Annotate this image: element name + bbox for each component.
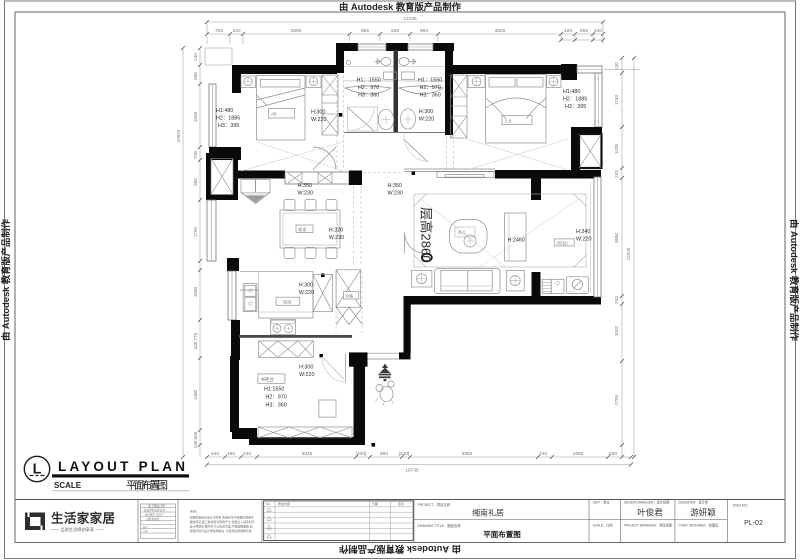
svg-text:H2：970: H2：970 xyxy=(358,85,379,91)
svg-text:CHIEF DESIGNER：绘图员: CHIEF DESIGNER：绘图员 xyxy=(679,523,719,528)
svg-text:DESIGN MANAGER：设计经理: DESIGN MANAGER：设计经理 xyxy=(624,500,670,505)
svg-text:[400]: [400] xyxy=(356,451,367,457)
svg-text:2705: 2705 xyxy=(614,394,619,405)
svg-text:H:320: H:320 xyxy=(329,228,343,234)
svg-text:W:220: W:220 xyxy=(299,290,314,296)
svg-text:由 Autodesk 教育版产品制作: 由 Autodesk 教育版产品制作 xyxy=(0,218,11,341)
svg-text:H2：970: H2：970 xyxy=(266,395,287,401)
svg-text:厨房: 厨房 xyxy=(283,299,291,306)
svg-text:H2：970: H2：970 xyxy=(420,85,441,91)
svg-text:H:300: H:300 xyxy=(299,365,313,371)
svg-text:935: 935 xyxy=(391,28,399,34)
svg-text:A8: A8 xyxy=(271,112,277,117)
svg-text:18735: 18735 xyxy=(405,468,419,474)
svg-text:设计编号 B2017: 设计编号 B2017 xyxy=(145,513,164,517)
svg-text:冰箱: 冰箱 xyxy=(345,293,353,299)
svg-text:435,775: 435,775 xyxy=(193,332,198,349)
svg-text:240: 240 xyxy=(243,451,251,457)
svg-text:施工图设计部: 施工图设计部 xyxy=(148,504,165,508)
svg-text:240: 240 xyxy=(193,53,198,61)
svg-text:1740: 1740 xyxy=(614,94,619,105)
svg-text:1.8: 1.8 xyxy=(505,119,512,124)
svg-text:H:350: H:350 xyxy=(388,183,402,189)
svg-text:555: 555 xyxy=(193,72,198,80)
svg-text:240: 240 xyxy=(614,62,619,70)
svg-text:SCALE：比例: SCALE：比例 xyxy=(593,523,613,528)
svg-text:12435: 12435 xyxy=(403,16,417,22)
svg-text:(阳台): (阳台) xyxy=(557,240,569,247)
svg-text:555: 555 xyxy=(580,28,588,34)
svg-text:DRAWING TITLE：图纸名称: DRAWING TITLE：图纸名称 xyxy=(418,523,462,528)
svg-text:1750: 1750 xyxy=(193,226,198,237)
svg-text:960: 960 xyxy=(380,451,388,457)
svg-text:1002: 1002 xyxy=(614,325,619,336)
svg-text:缃南礼居: 缃南礼居 xyxy=(472,508,504,518)
svg-text:[240]: [240] xyxy=(399,451,410,457)
svg-text:W:230: W:230 xyxy=(388,191,403,197)
svg-text:10925: 10925 xyxy=(176,129,181,142)
svg-text:243: 243 xyxy=(614,170,619,178)
svg-text:240: 240 xyxy=(594,28,602,34)
svg-text:H3：360: H3：360 xyxy=(266,403,287,409)
svg-text:H:340: H:340 xyxy=(576,229,590,235)
svg-text:W:220: W:220 xyxy=(299,372,314,378)
svg-text:1460: 1460 xyxy=(193,389,198,400)
svg-text:1660: 1660 xyxy=(193,286,198,297)
svg-text:240: 240 xyxy=(539,451,547,457)
svg-text:350: 350 xyxy=(193,178,198,186)
svg-text:PROJECT：项目名称: PROJECT：项目名称 xyxy=(418,502,451,507)
svg-text:书柜台: 书柜台 xyxy=(261,376,275,383)
svg-text:层高2860: 层高2860 xyxy=(419,207,435,263)
svg-text:W:230: W:230 xyxy=(329,235,344,241)
svg-text:日期: 日期 xyxy=(143,529,148,533)
svg-text:平面布置图: 平面布置图 xyxy=(483,529,521,539)
svg-text:3500: 3500 xyxy=(291,28,302,34)
svg-text:H:300: H:300 xyxy=(311,110,325,116)
svg-text:叶俊君: 叶俊君 xyxy=(637,508,663,518)
svg-text:游妍颖: 游妍颖 xyxy=(690,508,716,518)
svg-text:1660: 1660 xyxy=(573,451,584,457)
svg-text:H2：1885: H2：1885 xyxy=(563,97,587,103)
svg-text:1826: 1826 xyxy=(193,111,198,122)
svg-text:UNIT：单位: UNIT：单位 xyxy=(593,500,611,505)
svg-text:签字: 签字 xyxy=(398,501,404,506)
svg-text:Note:: Note: xyxy=(190,510,198,514)
svg-text:H3：360: H3：360 xyxy=(420,93,441,99)
svg-text:490: 490 xyxy=(227,451,235,457)
svg-text:955: 955 xyxy=(361,28,369,34)
svg-text:H3：395: H3：395 xyxy=(218,123,239,129)
svg-text:H1：1550: H1：1550 xyxy=(418,78,442,84)
svg-text:H:2460: H:2460 xyxy=(508,238,525,244)
svg-text:240,600: 240,600 xyxy=(193,431,198,448)
svg-text:H1:480: H1:480 xyxy=(563,89,580,95)
svg-text:3045: 3045 xyxy=(302,451,313,457)
svg-text:H:300: H:300 xyxy=(299,283,313,289)
svg-text:由 Autodesk 教育版产品制作: 由 Autodesk 教育版产品制作 xyxy=(339,1,462,12)
svg-text:240: 240 xyxy=(211,451,219,457)
svg-text:日期: 日期 xyxy=(372,501,378,506)
svg-text:H1:1550: H1:1550 xyxy=(264,387,284,393)
svg-text:有疑问请与设计师协商解决, 以现场实际放样为准: 有疑问请与设计师协商解决, 以现场实际放样为准 xyxy=(190,528,252,533)
svg-text:平面布置图: 平面布置图 xyxy=(126,480,168,492)
svg-text:H3：395: H3：395 xyxy=(565,104,586,110)
svg-text:茶几: 茶几 xyxy=(458,229,466,235)
svg-text:由 Autodesk 教育版产品制作: 由 Autodesk 教育版产品制作 xyxy=(338,544,461,555)
svg-text:H1:480: H1:480 xyxy=(216,108,233,114)
svg-text:H3：360: H3：360 xyxy=(358,93,379,99)
svg-text:餐桌: 餐桌 xyxy=(298,226,307,233)
svg-text:W:220: W:220 xyxy=(311,117,326,123)
svg-text:其他项目,施工前请核对现场尺寸,如有出入请及时与: 其他项目,施工前请核对现场尺寸,如有出入请及时与 xyxy=(190,519,255,524)
svg-text:H:300: H:300 xyxy=(419,109,433,115)
svg-text:PL-02: PL-02 xyxy=(744,520,763,527)
svg-text:设计师联系,图中尺寸以标注为准,不得按图量取,如: 设计师联系,图中尺寸以标注为准,不得按图量取,如 xyxy=(190,524,253,529)
svg-text:3680: 3680 xyxy=(614,232,619,243)
svg-text:PROJECT MANAGER：项目经理: PROJECT MANAGER：项目经理 xyxy=(624,523,673,528)
svg-text:420: 420 xyxy=(564,28,572,34)
svg-text:修改内容: 修改内容 xyxy=(278,501,290,506)
svg-text:DESIGNER：设计师: DESIGNER：设计师 xyxy=(679,500,709,505)
svg-text:出图专用章: 出图专用章 xyxy=(146,517,159,521)
svg-text:SCALE: SCALE xyxy=(54,481,82,490)
svg-text:DWG NO：: DWG NO： xyxy=(733,504,751,508)
svg-text:本图纸版权归设计方所有,未经许可不得翻印或用于: 本图纸版权归设计方所有,未经许可不得翻印或用于 xyxy=(190,515,255,520)
svg-text:图号: 图号 xyxy=(143,525,148,529)
svg-text:H2：1885: H2：1885 xyxy=(216,116,240,122)
svg-text:12025: 12025 xyxy=(626,247,631,260)
svg-text:No: No xyxy=(266,502,270,506)
svg-text:LAYOUT PLAN: LAYOUT PLAN xyxy=(58,459,188,474)
svg-text:1435: 1435 xyxy=(614,143,619,154)
svg-text:765: 765 xyxy=(215,28,223,34)
svg-text:3850: 3850 xyxy=(462,451,473,457)
svg-text:W:230: W:230 xyxy=(298,191,313,197)
svg-text:—— 品质生活缔创享家 ——: —— 品质生活缔创享家 —— xyxy=(51,526,104,533)
svg-text:960: 960 xyxy=(420,28,428,34)
svg-text:240: 240 xyxy=(232,28,240,34)
svg-text:3820: 3820 xyxy=(495,28,506,34)
svg-text:生活家家居: 生活家家居 xyxy=(51,511,115,526)
svg-text:H1：1550: H1：1550 xyxy=(357,78,381,84)
svg-text:W:220: W:220 xyxy=(419,117,434,123)
svg-text:W:220: W:220 xyxy=(576,237,591,243)
svg-text:H:350: H:350 xyxy=(298,183,312,189)
svg-text:建设单位资质证书: 建设单位资质证书 xyxy=(144,508,165,512)
svg-text:240: 240 xyxy=(609,451,617,457)
svg-text:由 Autodesk 教育版产品制作: 由 Autodesk 教育版产品制作 xyxy=(789,219,800,342)
svg-text:728: 728 xyxy=(193,151,198,159)
svg-text:243: 243 xyxy=(614,296,619,304)
